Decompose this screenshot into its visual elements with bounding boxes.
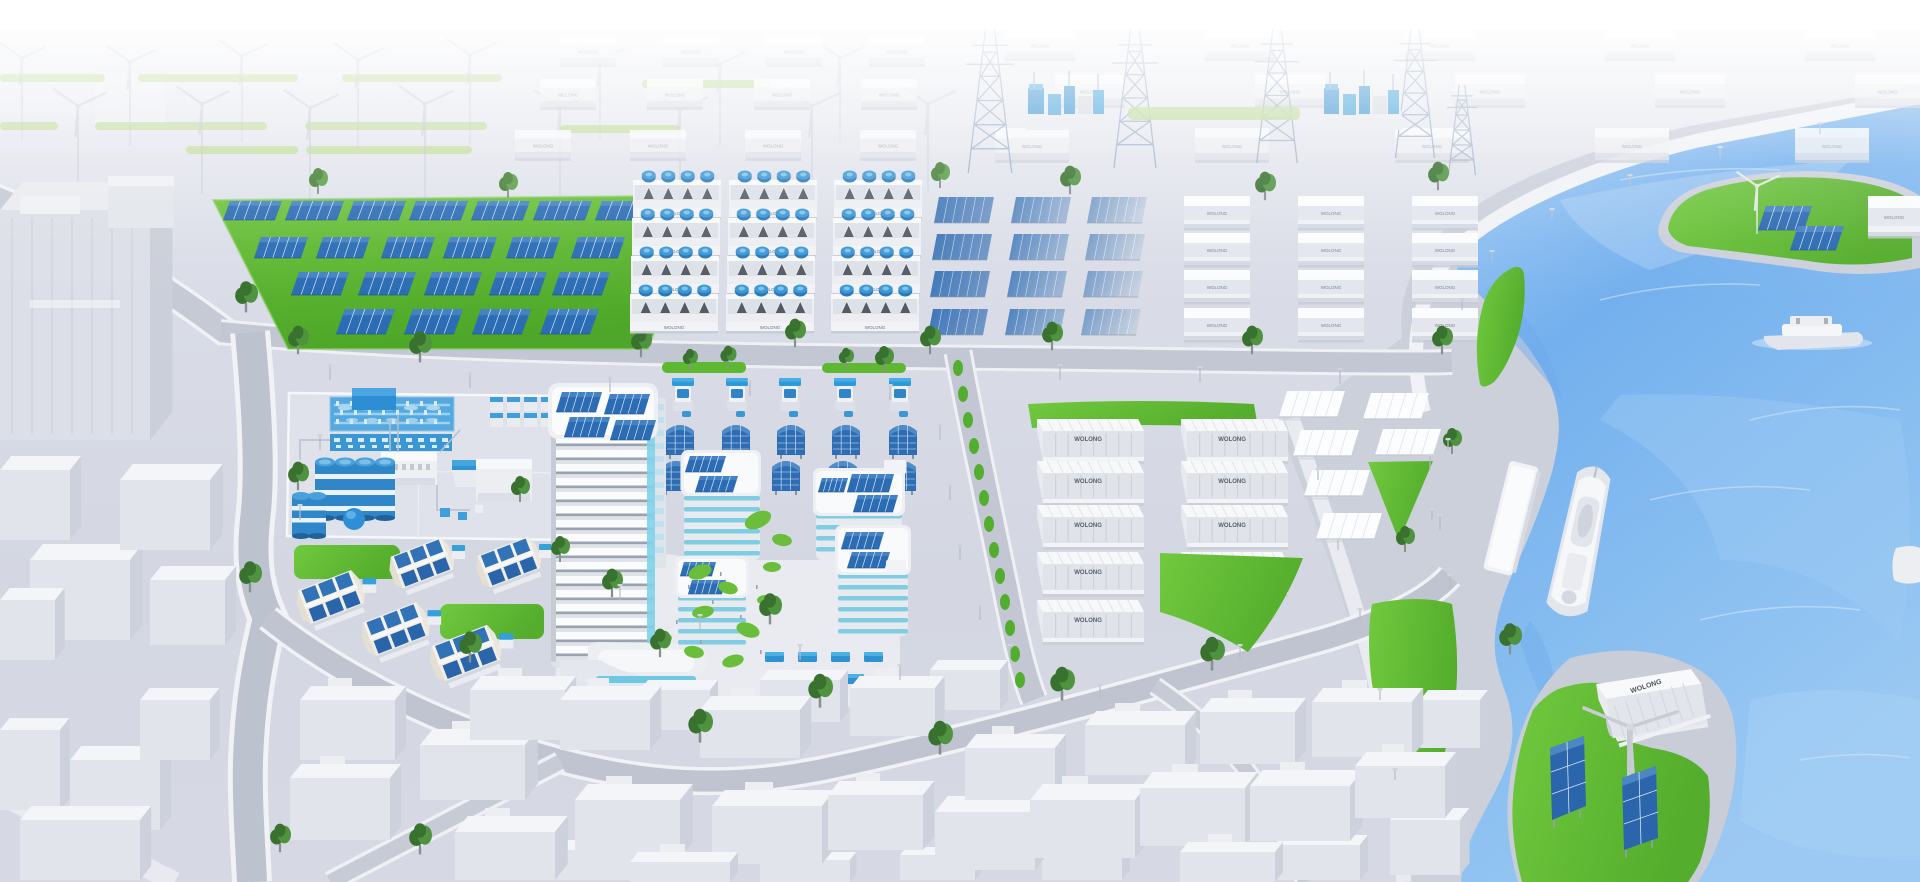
svg-text:WOLONG: WOLONG <box>865 325 886 330</box>
svg-text:WOLONG: WOLONG <box>1218 523 1246 529</box>
svg-text:WOLONG: WOLONG <box>1074 618 1102 624</box>
svg-text:WOLONG: WOLONG <box>1218 479 1246 485</box>
svg-text:WOLONG: WOLONG <box>1218 437 1246 443</box>
svg-text:WOLONG: WOLONG <box>1321 323 1342 328</box>
svg-text:WOLONG: WOLONG <box>1074 523 1102 529</box>
svg-text:WOLONG: WOLONG <box>1074 437 1102 443</box>
svg-text:WOLONG: WOLONG <box>1074 570 1102 576</box>
svg-text:WOLONG: WOLONG <box>1207 323 1228 328</box>
svg-text:WOLONG: WOLONG <box>664 325 685 330</box>
svg-text:WOLONG: WOLONG <box>1074 479 1102 485</box>
svg-text:WOLONG: WOLONG <box>760 325 781 330</box>
